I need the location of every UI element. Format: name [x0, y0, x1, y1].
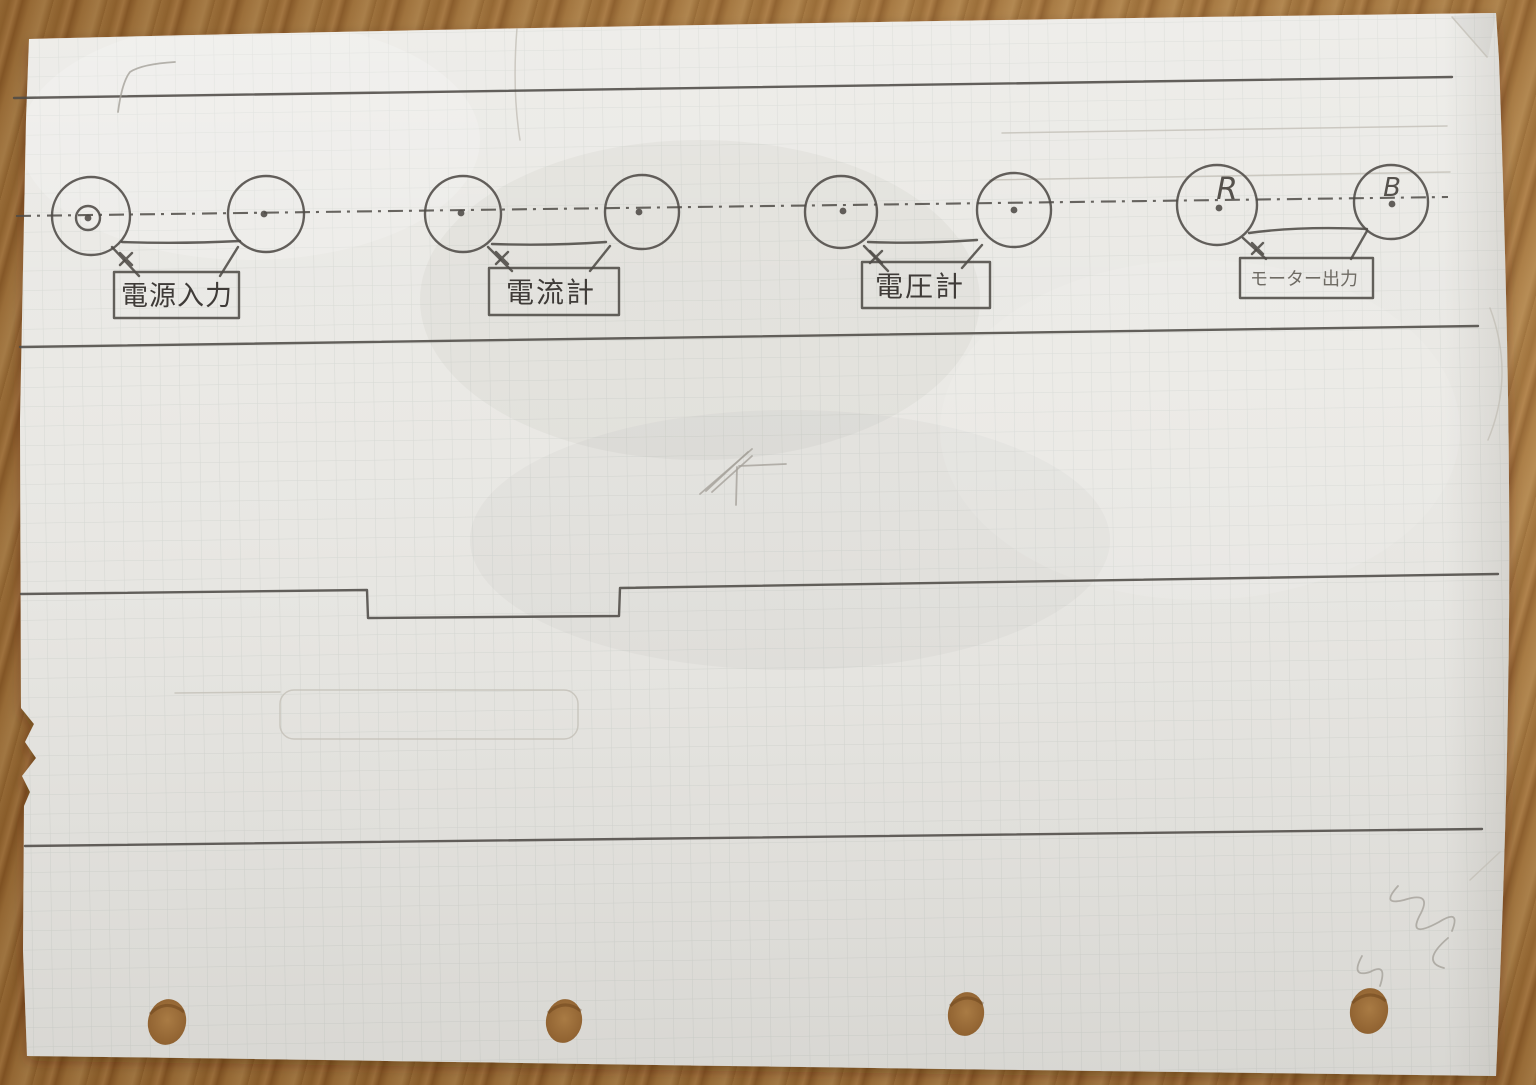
ammeter-label: 電流計 — [506, 276, 596, 309]
center-dot — [1011, 207, 1018, 214]
motor-output-label: モーター出力 — [1250, 269, 1358, 290]
center-dot — [85, 215, 92, 222]
center-dot — [840, 208, 847, 215]
center-dot — [458, 210, 465, 217]
center-dot — [261, 211, 268, 218]
power-input-label: 電源入力 — [121, 281, 233, 312]
highlight-spot-2 — [940, 260, 1460, 600]
hand-drawn-panel-sketch: R B 電源入力 電流計 電圧計 モーター出力 — [0, 0, 1536, 1085]
terminal-mark-r: R — [1216, 171, 1238, 207]
terminal-mark-b: B — [1383, 173, 1401, 203]
center-dot — [636, 209, 643, 216]
photo-of-sketch: { "diagram": { "connectors": [ { "id": "… — [0, 0, 1536, 1085]
highlight-spot — [20, 20, 480, 260]
voltmeter-label: 電圧計 — [875, 270, 965, 303]
paper-sheet — [0, 0, 1536, 1085]
